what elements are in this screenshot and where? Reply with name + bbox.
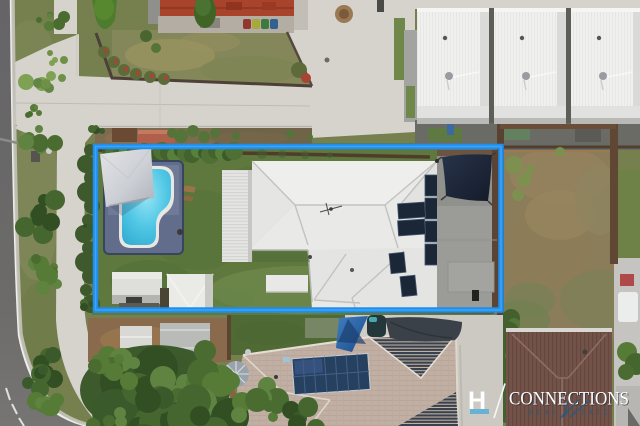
svg-text:REAL ESTATE: REAL ESTATE — [528, 409, 608, 417]
svg-text:CONNECTIONS: CONNECTIONS — [509, 390, 629, 410]
